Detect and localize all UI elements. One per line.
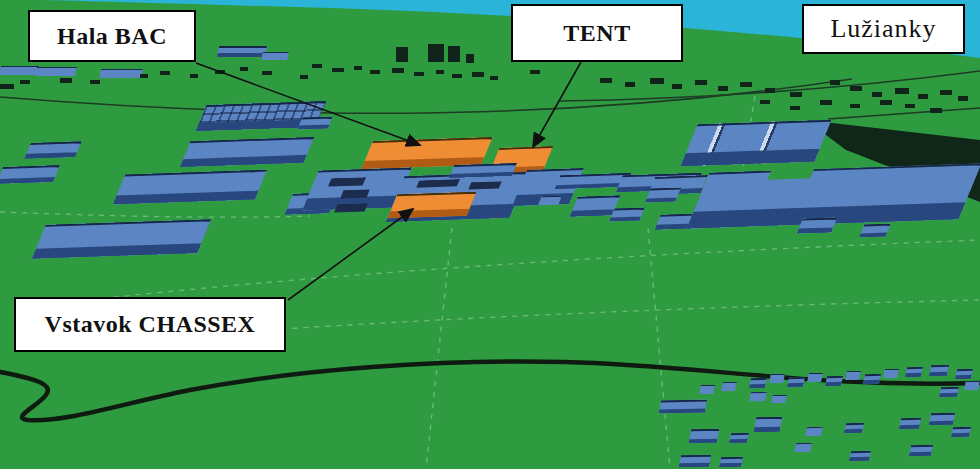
arrow-tent — [533, 62, 581, 147]
label-tent: TENT — [511, 4, 683, 62]
label-hala-bac: Hala BAC — [28, 10, 196, 62]
arrow-hala-bac — [196, 63, 420, 145]
site-3d-view: Hala BAC TENT Lužianky Vstavok CHASSEX — [0, 0, 980, 469]
annotation-arrows — [0, 0, 980, 469]
arrow-chassex — [288, 209, 413, 300]
label-luzianky: Lužianky — [802, 4, 965, 54]
label-chassex: Vstavok CHASSEX — [14, 297, 286, 352]
